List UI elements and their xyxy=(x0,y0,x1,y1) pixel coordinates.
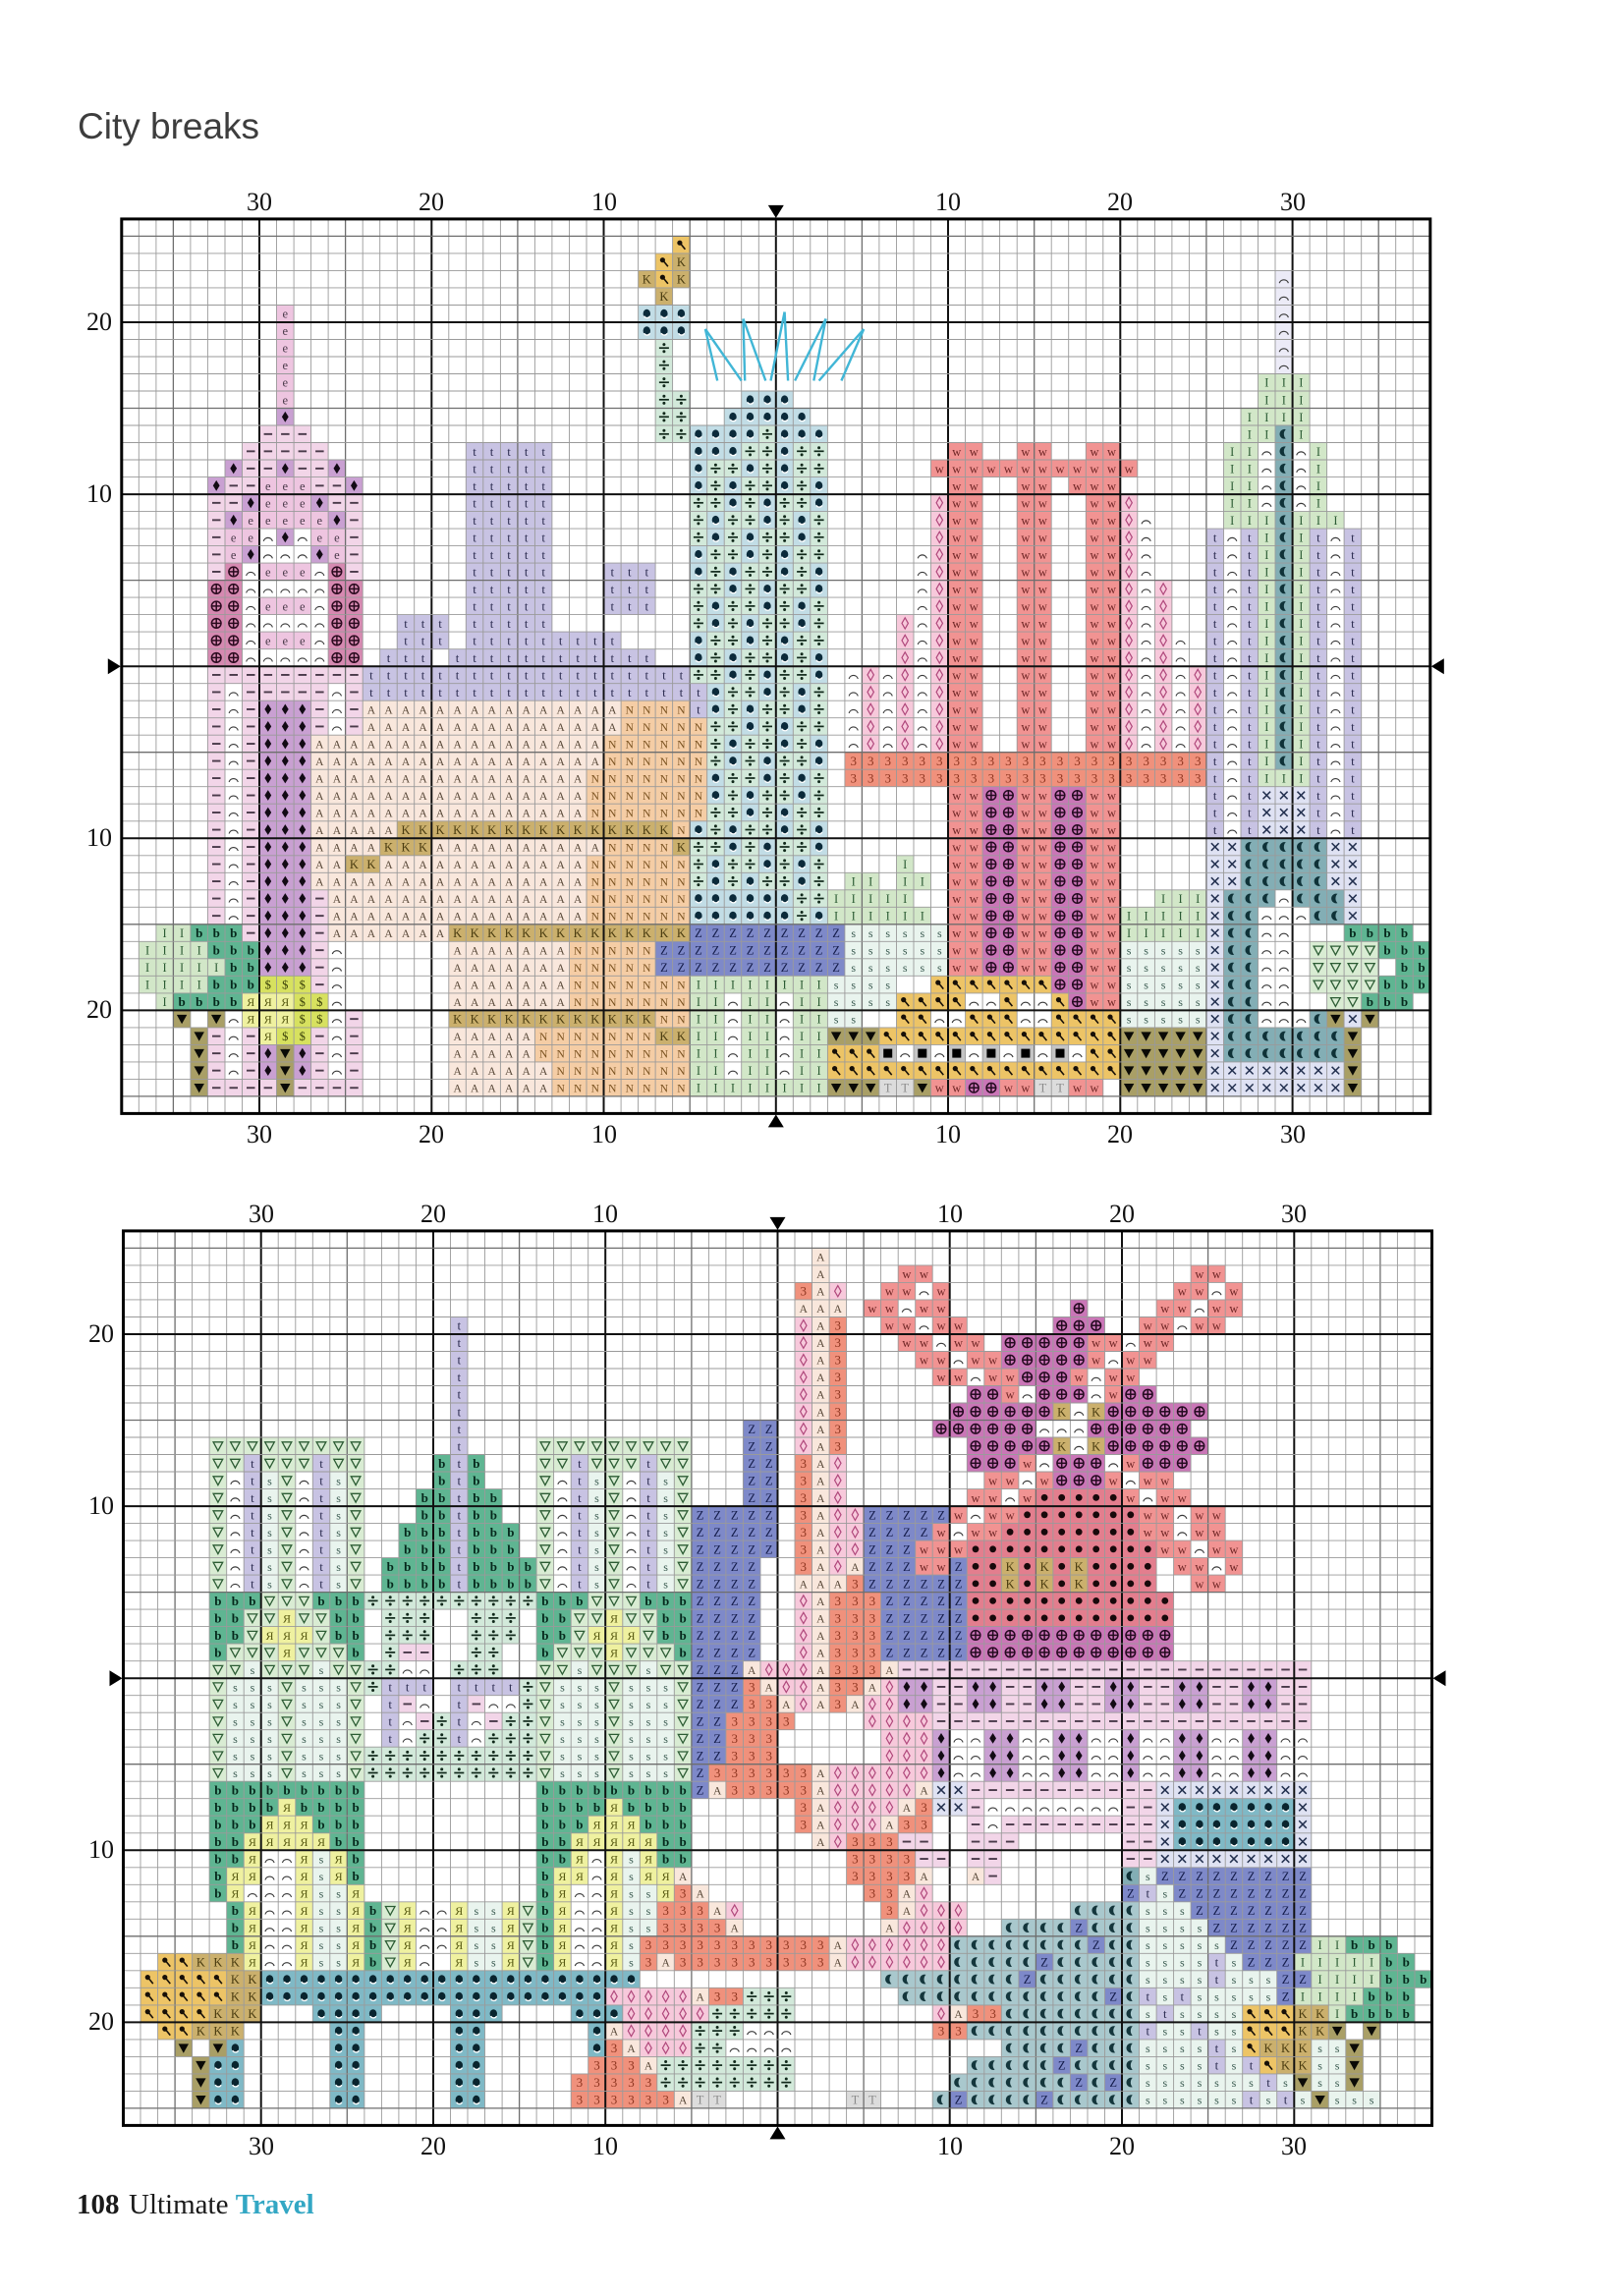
svg-text:City breaks: City breaks xyxy=(78,106,259,146)
svg-text:30: 30 xyxy=(247,1120,272,1148)
svg-text:30: 30 xyxy=(1281,1200,1307,1228)
svg-text:20: 20 xyxy=(1107,1120,1133,1148)
svg-text:20: 20 xyxy=(420,2132,446,2160)
svg-text:20: 20 xyxy=(1109,2132,1135,2160)
svg-text:Ultimate Travel: Ultimate Travel xyxy=(129,2189,314,2220)
svg-text:30: 30 xyxy=(249,2132,274,2160)
svg-text:10: 10 xyxy=(935,188,961,216)
svg-text:20: 20 xyxy=(1107,188,1133,216)
svg-text:20: 20 xyxy=(88,2007,114,2036)
svg-text:20: 20 xyxy=(1109,1200,1135,1228)
svg-text:20: 20 xyxy=(86,995,112,1024)
svg-text:30: 30 xyxy=(247,188,272,216)
svg-text:10: 10 xyxy=(591,188,617,216)
svg-text:30: 30 xyxy=(1280,1120,1306,1148)
svg-text:10: 10 xyxy=(935,1120,961,1148)
svg-text:10: 10 xyxy=(88,1835,114,1864)
svg-text:20: 20 xyxy=(420,1200,446,1228)
svg-text:10: 10 xyxy=(86,479,112,508)
svg-text:10: 10 xyxy=(591,1120,617,1148)
svg-text:10: 10 xyxy=(937,2132,963,2160)
svg-text:30: 30 xyxy=(249,1200,274,1228)
svg-text:20: 20 xyxy=(88,1319,114,1348)
svg-text:10: 10 xyxy=(88,1491,114,1520)
svg-text:108: 108 xyxy=(77,2189,120,2220)
svg-text:10: 10 xyxy=(592,2132,618,2160)
svg-text:10: 10 xyxy=(937,1200,963,1228)
svg-text:20: 20 xyxy=(419,188,444,216)
svg-text:10: 10 xyxy=(86,823,112,852)
svg-text:20: 20 xyxy=(86,308,112,336)
svg-text:30: 30 xyxy=(1280,188,1306,216)
svg-text:10: 10 xyxy=(592,1200,618,1228)
svg-text:30: 30 xyxy=(1281,2132,1307,2160)
svg-text:20: 20 xyxy=(419,1120,444,1148)
